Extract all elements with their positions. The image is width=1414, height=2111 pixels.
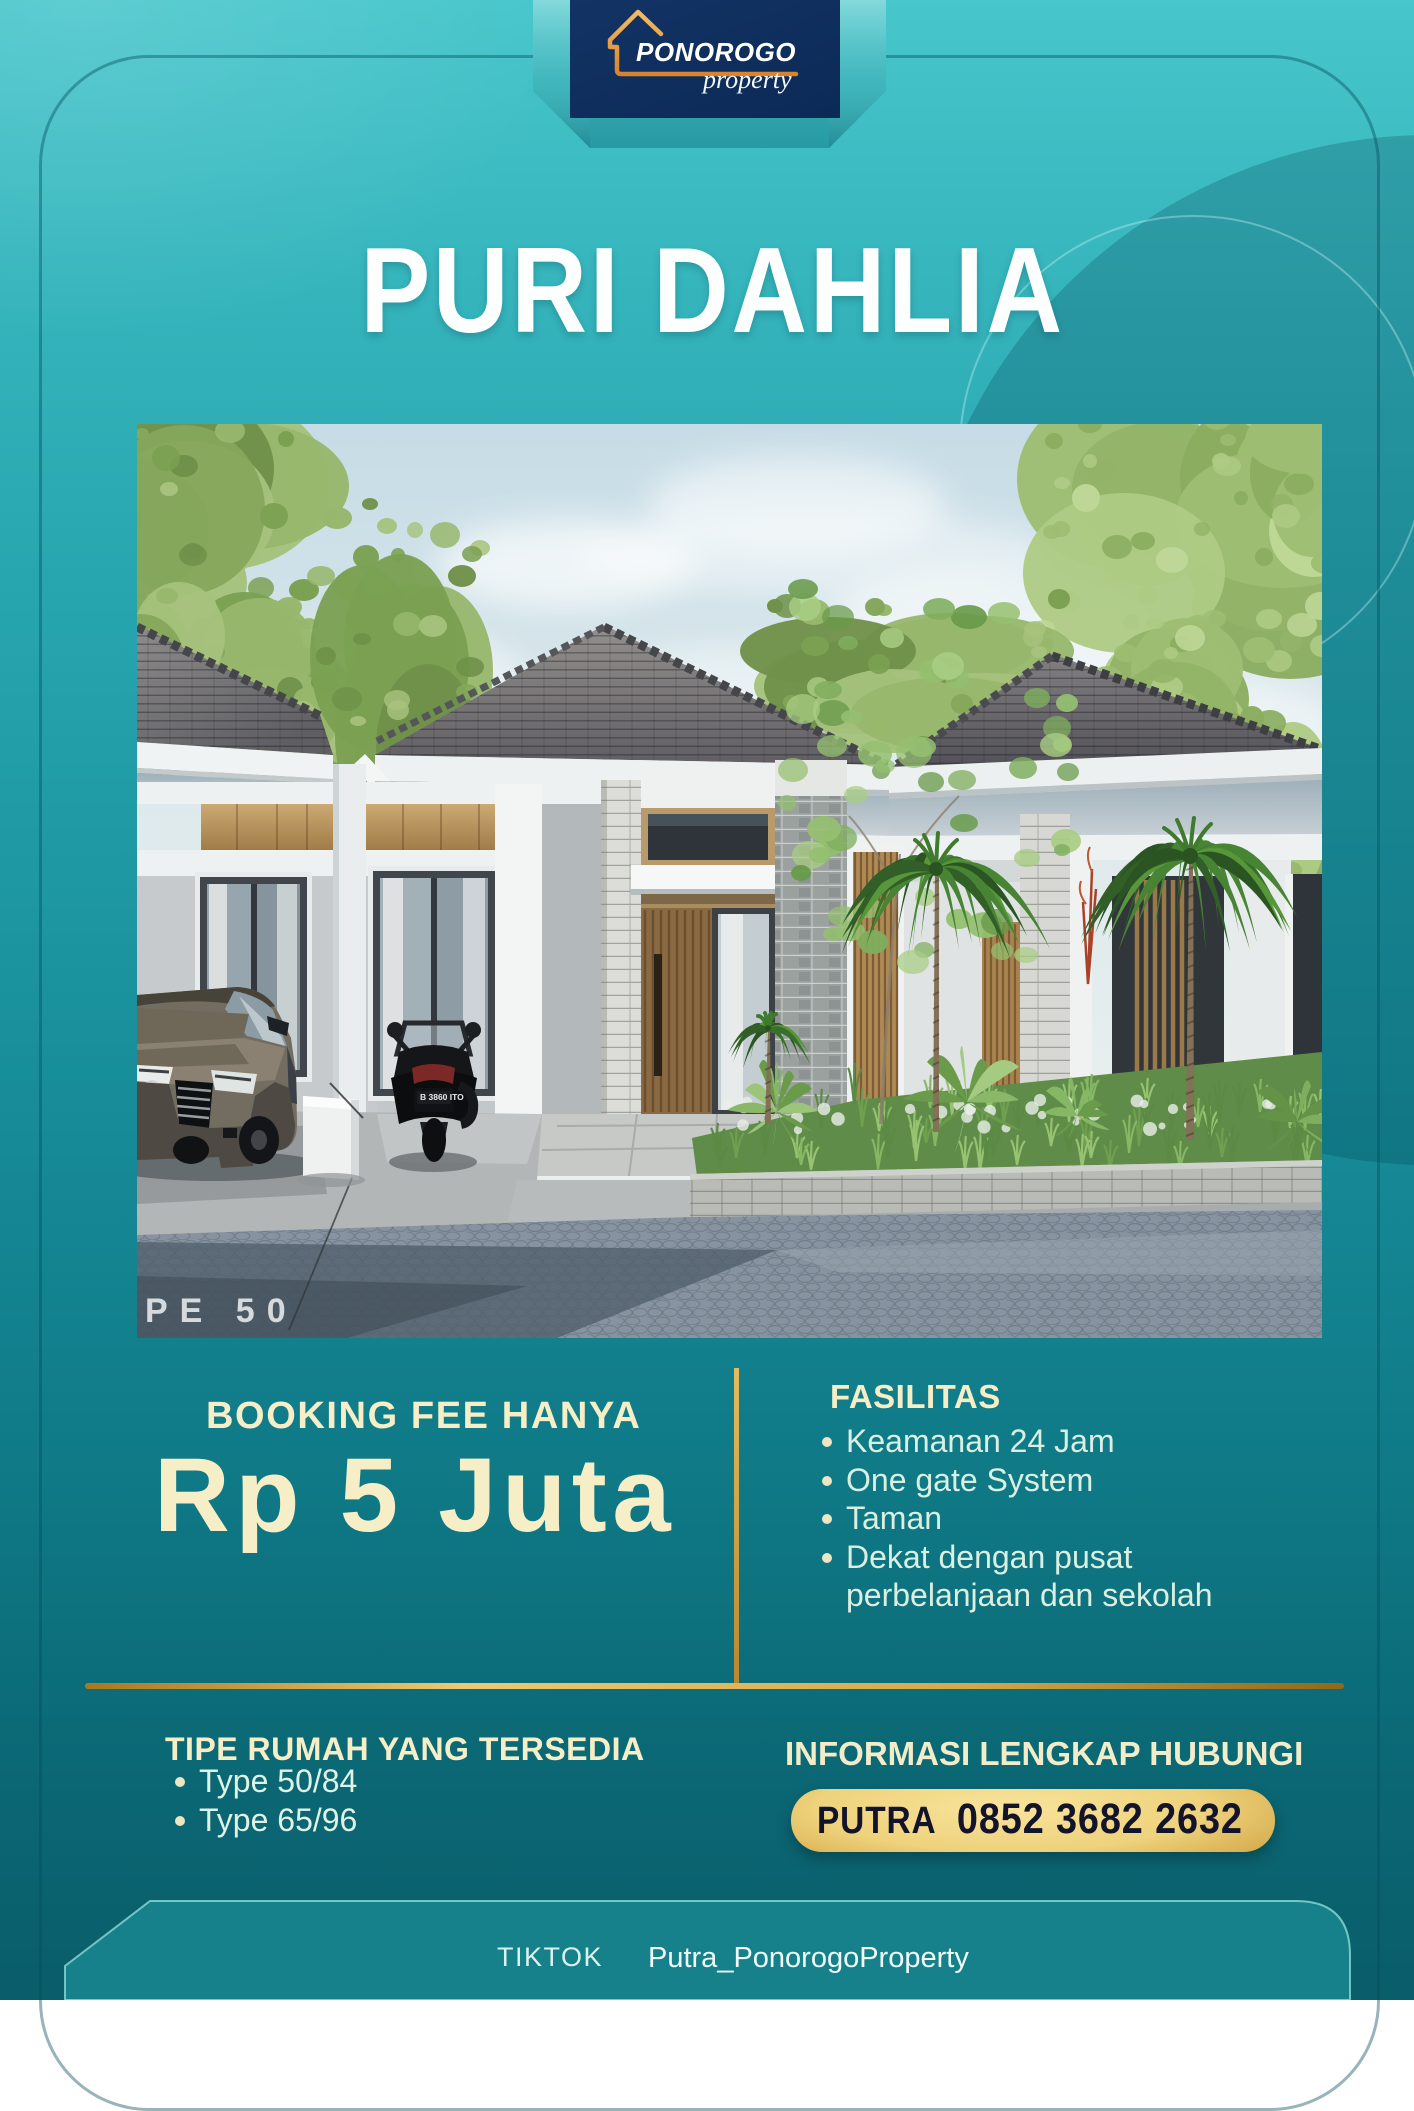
svg-text:property: property xyxy=(701,65,792,94)
svg-text:B 3860 ITO: B 3860 ITO xyxy=(420,1092,464,1102)
svg-text:PONOROGO: PONOROGO xyxy=(636,37,796,67)
svg-text:PE 50: PE 50 xyxy=(145,1292,298,1330)
